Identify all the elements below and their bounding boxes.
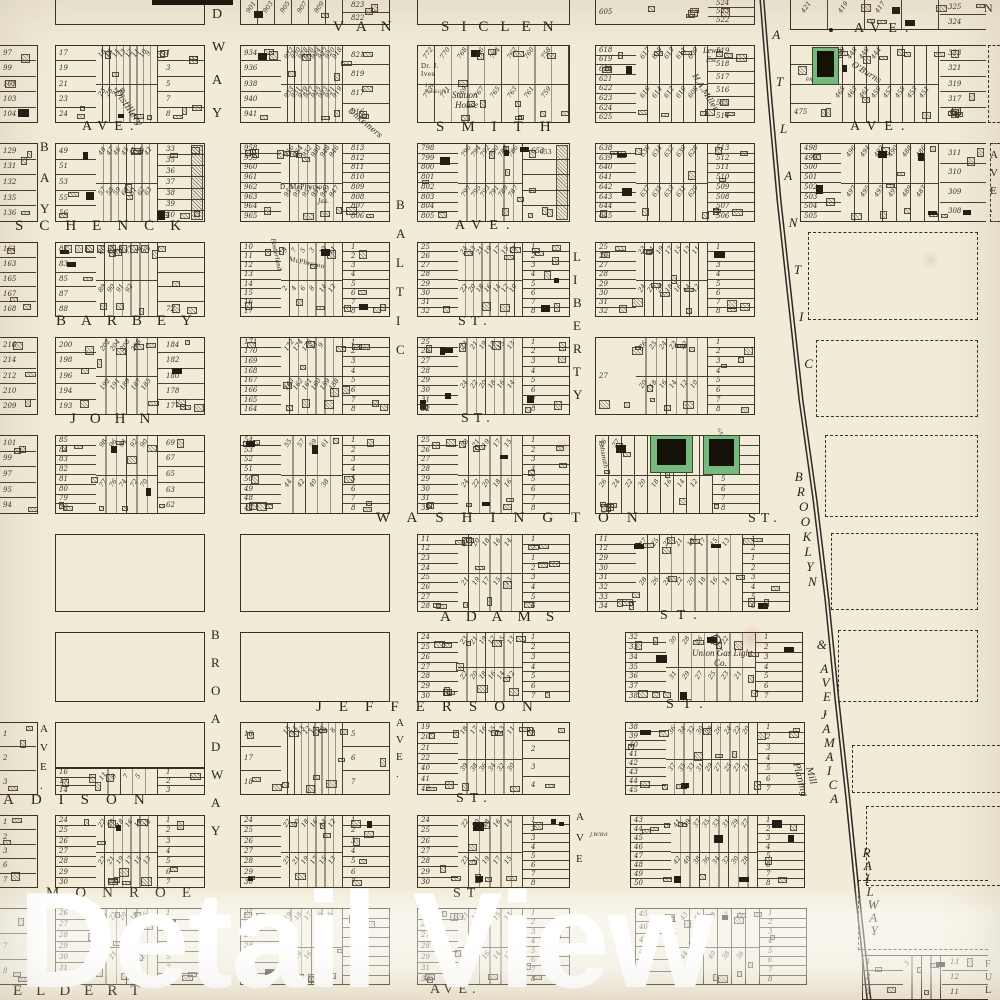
street-label-vertical: E [396,752,403,763]
street-label-diagonal: R [797,485,805,498]
street-label-vertical: E [573,319,581,332]
church-building [812,47,839,85]
street-label: AVE. [430,983,480,997]
city-block [852,745,1000,793]
street-label-vertical: E [40,762,47,773]
city-block: 9799101103104 [0,45,38,123]
city-block: 6186196206216226236246255195185175165155… [595,45,755,123]
city-block: 5453525150494847123456785557596144424038 [240,435,390,514]
street-label-diagonal: T [794,263,801,276]
landmark-label: Est. [706,55,718,64]
street-label: ST. [456,792,493,806]
city-block: 2001981961941931841821801781772022042062… [55,337,205,415]
building-footprint [817,51,835,77]
street-label-diagonal: T [776,75,783,88]
city-block [55,534,205,612]
street-label-diagonal: B [795,470,803,483]
street-label-diagonal: C [829,778,838,791]
street-label-vertical: A [396,718,404,729]
city-block: 605524523522 [595,0,755,25]
city-block: 4984995005015025035045053113103093084964… [800,143,986,222]
city-block: 2526272829303132123456782321191715131124… [595,242,755,317]
city-block [55,722,205,768]
city-block [55,632,205,702]
city-block [240,632,390,702]
street-label-diagonal: A [822,722,830,735]
city-block: 7727707687667647627607587737717697677657… [417,45,570,123]
building-footprint [709,439,734,466]
city-block: 27123456782625242322201816141210 [595,337,755,415]
street-label: AVE. [455,219,517,233]
street-label-vertical: B [40,140,49,153]
street-label-vertical: C [396,343,405,356]
street-label: ADAMS [440,610,569,625]
street-label-diagonal: O [801,515,810,528]
city-block: 2425262728293012345672220181614122321191… [240,815,390,888]
street-label-vertical: A [396,227,405,240]
city-block: 2627282930313212345782422201816232119171… [55,908,205,985]
city-block: 3839404142434445123456736343230282624222… [625,722,805,795]
street-label-vertical: A [576,812,584,823]
city-block: 2526272829303132123456782321191715242220… [417,435,570,514]
landmark-label: Dr. J. [421,62,439,70]
city-block [240,534,390,612]
street-label: MONROE [46,886,207,901]
city-block: 16171856715141312111098 [240,722,390,795]
city-block: 2425262728293012345678222018161423211917… [417,815,570,888]
street-label-vertical: Y [212,107,222,121]
street-label-vertical: R [211,656,220,669]
gas-holder [711,635,721,645]
street-label-vertical: N [984,2,993,14]
street-label-diagonal: A [784,169,792,182]
city-block: 4546474849501234567843413937354442403836 [635,908,807,985]
city-block: 1920212240414212341817161513113938363432… [417,722,570,795]
landmark-label: Union Gas Light [692,648,753,658]
street-label-vertical: V [396,735,404,746]
street-label-vertical: L [396,256,404,269]
city-block: 129131132135136 [0,143,38,222]
street-label: VAN [333,20,406,35]
street-label-diagonal: I [799,310,803,323]
street-label: BARBEY [56,314,207,329]
street-label-diagonal: J [821,708,827,721]
city-block: 1231312113 [862,955,988,1000]
street-label-vertical: A [211,796,220,809]
city-block: 1711701691681671661651641234567817217417… [240,337,390,415]
city-block: 8584838281807978696765636298969492907776… [55,435,205,514]
city-block: 78 [0,908,38,985]
street-label-vertical: . [396,769,399,780]
street-label-vertical: D [211,740,220,753]
city-block: 123 [0,722,38,795]
city-block: 2526272829313212345678191817161520181614… [240,908,390,985]
street-label-vertical: T [396,285,404,298]
city-block: 1112293031323334121234562725232119171513… [595,534,790,612]
street-label: SCHENCK [15,219,197,234]
city-block [825,435,978,517]
city-block: 2526272829303132123456782423211917151322… [417,242,570,317]
street-label-diagonal: Y [871,924,878,937]
street-label-vertical: Y [573,388,582,401]
street-label-vertical: Y [211,824,220,837]
street-label-vertical: A [212,74,222,88]
landmark-label: Co. [714,658,727,668]
city-block [831,533,978,610]
street-label-vertical: E [576,854,583,865]
church-building [703,435,740,475]
landmark-label: House [455,100,478,110]
street-label: AVE. [854,22,916,36]
street-label-diagonal: N [808,575,817,588]
street-label-diagonal: V [822,676,830,689]
landmark-label: VanSiclen [425,90,450,95]
street-label-diagonal: C [804,357,813,370]
street-label-vertical: R [573,342,582,355]
building-footprint [657,439,686,465]
landmark-label: 653 [540,148,552,156]
city-block [988,45,1000,123]
street-label: AVE. [850,120,912,134]
city-block: 81838587887280797877767589909192 [55,242,205,317]
street-label-vertical: B [573,296,582,309]
street-label-diagonal: I [827,764,831,777]
street-label: WASHINGTON [376,511,656,526]
landmark-label: D. McPherson [280,183,326,191]
street-label: ST. [453,887,490,901]
city-block: 1112232425262728121234562220181614211917… [417,534,570,612]
street-label-vertical: V [576,833,584,844]
street-label-vertical: F [985,960,991,970]
city-block: 216214212210209 [0,337,38,415]
street-label-diagonal: O [799,500,808,513]
map-edge-bar [152,0,233,5]
street-label-vertical: A [211,712,220,725]
street-label: ST. [458,315,492,329]
city-block: 1011121314151617123456789753131124681412 [240,242,390,317]
city-block: 2425262728293012345672220181614122321191… [55,815,205,888]
street-label-vertical: . [40,781,43,792]
landmark-label: J.W. [425,84,436,89]
street-label-vertical: W [211,768,223,781]
city-block: 161163165167168 [0,242,38,317]
city-block: 2526272829303132123456782321191715132422… [417,337,570,415]
street-label-vertical: T [573,365,581,378]
street-label-diagonal: Y [806,560,813,573]
street-label-diagonal: A [820,662,828,675]
landmark-label: Station [452,90,478,100]
street-label-diagonal: N [789,216,798,229]
street-label-vertical: D [212,8,222,22]
street-label-vertical: V [990,168,998,179]
street-label-diagonal: A [826,750,834,763]
city-block: 9349369389409418218198178169329309289269… [240,45,390,123]
landmark-label: Ives [421,70,435,78]
street-label-vertical: . [990,204,993,215]
street-label: ST. [660,609,706,623]
street-label-vertical: U [985,973,992,983]
street-label: ELDERT [13,984,154,999]
city-block: 12367 [0,815,38,888]
city-block: 10199979594 [0,435,38,514]
city-block [838,630,978,702]
street-label: SMITH [436,120,568,135]
street-label-vertical: Y [40,202,49,215]
landmark-label: Jas. [318,198,329,205]
street-label: ST. [461,412,495,426]
street-label: JEFFERSON [316,700,550,715]
street-label-vertical: V [40,743,48,754]
street-label-diagonal: L [804,545,811,558]
street-label: ST. [748,512,782,526]
street-label: JOHN [70,412,164,427]
city-block: 4344454647484950123456784139373533312927… [630,815,805,888]
city-block: 2526272829313212345678211917151320181614… [417,908,570,985]
city-block [858,880,988,950]
street-label-diagonal: L [780,122,787,135]
street-label-vertical: L [573,250,581,263]
map-dot [829,28,833,32]
city-block: 6386396406416426436446455135125115105095… [595,143,755,222]
street-label-diagonal: & [817,638,827,651]
city-block: 16171412311975 [55,768,205,795]
street-label-vertical: I [396,314,400,327]
street-label-diagonal: K [803,530,812,543]
street-label-vertical: B [396,198,405,211]
landmark-label: Lewis [703,46,722,55]
street-label-vertical: L [985,986,991,996]
city-block [808,232,978,320]
street-label-vertical: A [40,171,49,184]
school-building [650,435,693,473]
street-label-diagonal: A [830,792,838,805]
street-label-diagonal: A [772,28,780,41]
street-label-diagonal: E [823,690,831,703]
street-label-vertical: B [211,628,220,641]
city-block: 2425262728293012345672321191715132220181… [417,632,570,702]
landmark-label: J.W.Wd [590,832,607,838]
street-label-vertical: W [212,41,225,55]
street-label-diagonal: M [824,736,835,749]
street-label: ST. [666,698,712,712]
city-block [816,340,978,417]
historic-atlas-map: 8238229019039059079096055245235223253244… [0,0,1000,1000]
city-block [866,806,1000,886]
street-label-vertical: O [211,684,220,697]
city-block: 4951535556333536373839404847464544434257… [55,143,205,222]
street-label-vertical: A [990,150,998,161]
street-label: ADISON [3,793,162,808]
street-label-vertical: I [573,273,577,286]
street-label-vertical: A [40,724,48,735]
street-label: SICLEN [441,20,566,35]
street-label-vertical: E [990,186,997,197]
